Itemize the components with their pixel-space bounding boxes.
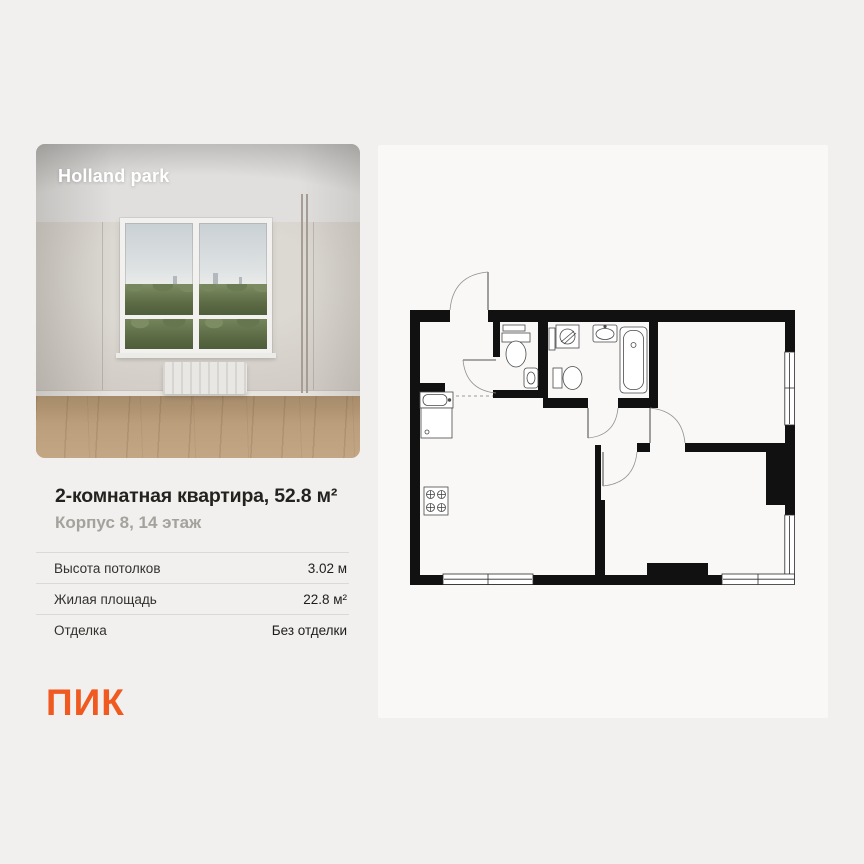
wc-bottom-wall xyxy=(493,390,543,398)
listing-title: 2-комнатная квартира, 52.8 м² xyxy=(55,485,385,508)
wood-floor xyxy=(36,396,360,458)
trees-view xyxy=(125,319,193,349)
skyline-building xyxy=(213,273,218,284)
top-wall-right xyxy=(488,310,795,322)
window-pane xyxy=(125,223,193,315)
bedroom-bottom-wall xyxy=(685,443,795,452)
wc-door xyxy=(463,360,496,393)
spec-label: Жилая площадь xyxy=(54,592,157,607)
wc-toilet-icon xyxy=(502,333,530,367)
spec-value: Без отделки xyxy=(272,623,347,638)
table-row: Жилая площадь 22.8 м² xyxy=(36,583,349,614)
trees-view xyxy=(199,319,267,349)
walls xyxy=(410,310,795,585)
right-wall-pier-inner xyxy=(766,443,786,505)
bathtub-icon xyxy=(620,327,647,393)
divider-wall-thin xyxy=(595,445,601,500)
wall-ledge xyxy=(647,563,708,575)
bathroom-sink-icon xyxy=(593,325,617,342)
shading xyxy=(290,144,360,396)
kitchen-sink-icon xyxy=(420,392,453,408)
divider-wall-thick xyxy=(595,500,605,575)
bedroom-window xyxy=(785,352,795,425)
project-name-overlay: Holland park xyxy=(58,166,169,187)
entrance-door xyxy=(450,272,488,310)
trees-view xyxy=(199,284,267,315)
floor-plan-card xyxy=(378,145,828,718)
bath-bottom-wall-left xyxy=(543,398,588,408)
radiator xyxy=(163,362,247,394)
right-wall-top xyxy=(785,310,795,352)
spec-label: Высота потолков xyxy=(54,561,161,576)
room-window xyxy=(120,218,272,353)
hall-wall-stub xyxy=(420,383,445,393)
spec-label: Отделка xyxy=(54,623,107,638)
floor-plan xyxy=(410,268,795,585)
window-sill xyxy=(116,353,276,358)
bedroom-left-wall xyxy=(649,322,658,405)
washing-machine-icon xyxy=(556,325,579,348)
table-row: Высота потолков 3.02 м xyxy=(36,552,349,583)
towel-dryer-icon xyxy=(549,328,555,350)
window-lower-panes xyxy=(125,319,267,349)
wc-bath-wall xyxy=(538,322,548,398)
apartment-photo-card: Holland park xyxy=(36,144,360,458)
window-pane xyxy=(199,319,267,349)
shelf-icon xyxy=(503,325,525,331)
trees-view xyxy=(125,284,193,315)
bathroom-door xyxy=(588,408,618,438)
kitchen-window xyxy=(443,574,533,585)
windows xyxy=(443,352,795,585)
spec-value: 3.02 м xyxy=(308,561,347,576)
dishwasher-icon xyxy=(421,408,452,438)
window-pane xyxy=(199,223,267,315)
pik-logo: ПИК xyxy=(46,684,125,722)
stove-icon xyxy=(424,487,448,515)
living-room-door xyxy=(603,452,637,486)
table-row: Отделка Без отделки xyxy=(36,614,349,645)
window-pane xyxy=(125,319,193,349)
window-upper-panes xyxy=(125,223,267,315)
fixtures xyxy=(420,325,647,515)
corner-window xyxy=(722,515,795,585)
corridor-jamb xyxy=(637,443,650,452)
wc-left-wall xyxy=(493,322,500,357)
bedroom-door xyxy=(650,408,685,443)
listing-screenshot: { "page": { "background": "#f1f0ee" }, "… xyxy=(0,0,864,864)
spec-table: Высота потолков 3.02 м Жилая площадь 22.… xyxy=(36,552,349,645)
right-wall-pier xyxy=(785,425,795,515)
left-wall xyxy=(410,310,420,585)
wc-sink-icon xyxy=(524,368,538,388)
spec-value: 22.8 м² xyxy=(303,592,347,607)
listing-subtitle: Корпус 8, 14 этаж xyxy=(55,513,385,533)
bathroom-toilet-icon xyxy=(553,367,582,390)
